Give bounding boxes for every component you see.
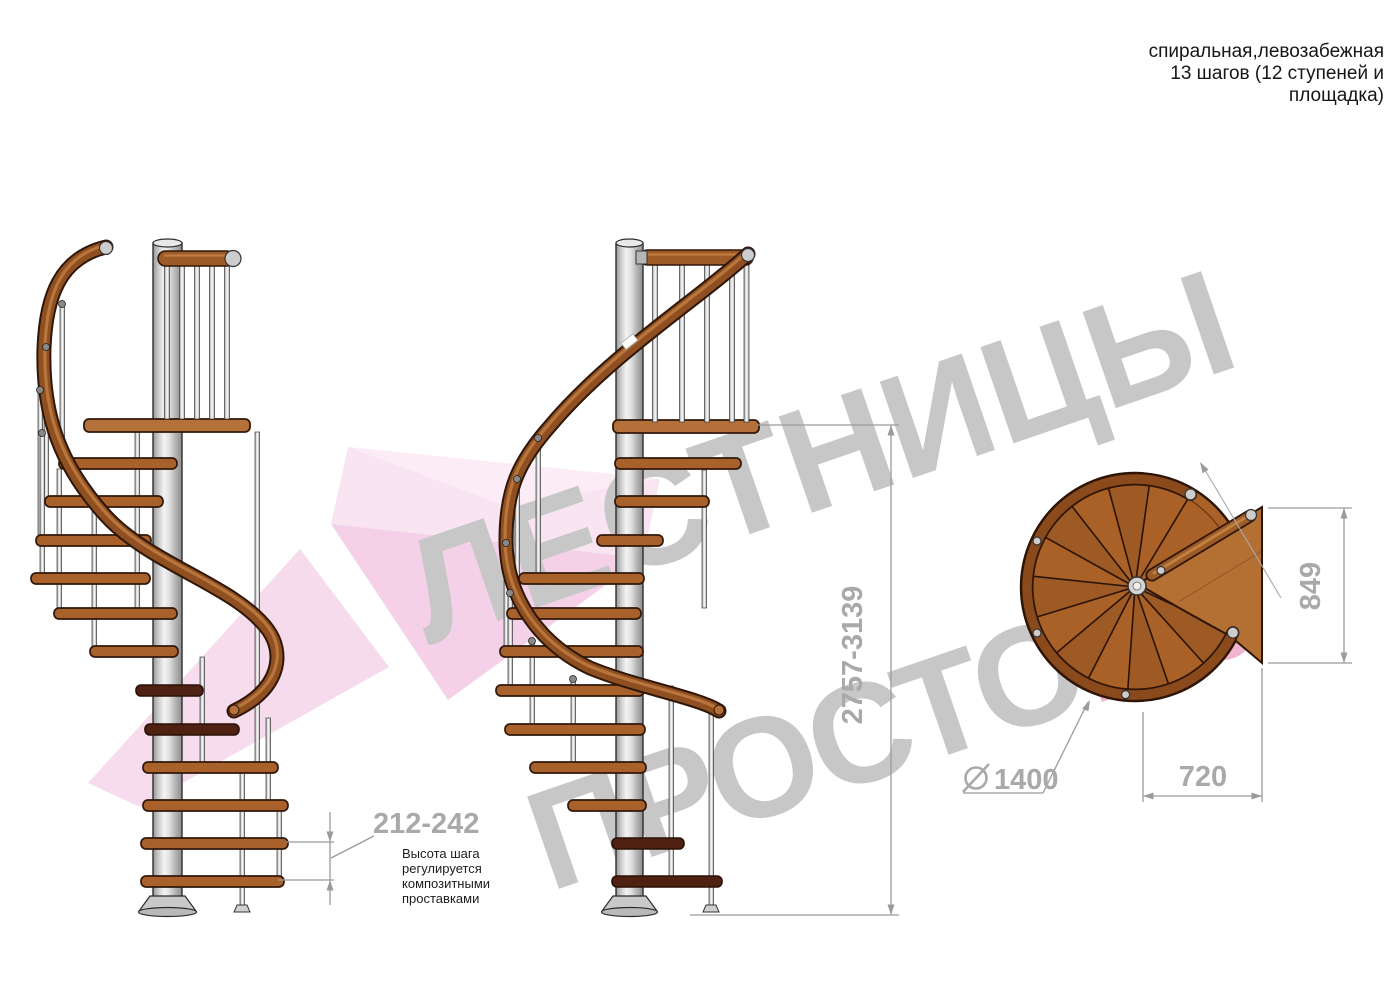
pole-base-plate (602, 908, 658, 917)
platform-board (613, 420, 759, 433)
header-line-2: 13 шагов (12 ступеней и (1170, 63, 1384, 84)
handrail-end (714, 705, 724, 715)
step-height-note-2: регулируется (402, 861, 482, 876)
rim-end-cap (1185, 489, 1196, 500)
header-line-1: спиральная,левозабежная (1149, 41, 1384, 62)
tread (90, 646, 178, 657)
watermark-word-2-gray: ПРОСТО (508, 584, 1103, 921)
tread (141, 838, 288, 849)
platform-depth-value: 849 (1295, 562, 1327, 610)
step-height-note-3: композитными (402, 876, 490, 891)
elevation-view-left (31, 239, 288, 917)
handrail-top-cap (742, 249, 755, 262)
tread (530, 762, 646, 773)
handrail-end (229, 705, 239, 715)
tread (141, 876, 284, 887)
pole-top-cap (616, 239, 643, 247)
baluster-foot (703, 905, 719, 912)
header-line-3: площадка) (1289, 85, 1384, 106)
tread-far-side (136, 685, 203, 696)
tread (615, 458, 741, 469)
tread (505, 724, 645, 735)
drawing-canvas: ЛЕСТНИЦЫ ПРОСТО.РУ (0, 0, 1400, 1000)
tread (597, 535, 663, 546)
handrail-top-cap (100, 242, 113, 255)
tread (568, 800, 646, 811)
rim-end-cap (1227, 627, 1238, 638)
tread-far-side (612, 876, 722, 887)
center-pole-core (1133, 582, 1141, 590)
step-height-note-1: Высота шага (402, 846, 480, 861)
tread-far-side (145, 724, 239, 735)
pole-top-cap (153, 239, 182, 247)
diameter-value: 1400 (994, 764, 1059, 796)
tread-far-side (612, 838, 684, 849)
rim-baluster-dot (1122, 691, 1130, 699)
platform-handrail-cap (1246, 510, 1257, 521)
platform-handrail-fitting (1157, 567, 1165, 575)
tread (143, 800, 288, 811)
pole-base-plate (139, 908, 197, 917)
dimension-step-height: 212-242 Высота шага регулируется компози… (278, 808, 490, 906)
rim-baluster-dot (1033, 629, 1041, 637)
page-header: спиральная,левозабежная 13 шагов (12 сту… (1149, 41, 1384, 106)
staircase-drawing: ЛЕСТНИЦЫ ПРОСТО.РУ (0, 0, 1400, 1000)
platform-width-value: 720 (1179, 761, 1227, 793)
rim-baluster-dot (1033, 537, 1041, 545)
platform-board (84, 419, 250, 432)
step-height-value: 212-242 (373, 808, 479, 840)
tread (31, 573, 150, 584)
baluster-foot (234, 905, 250, 912)
platform-handrail-bar (158, 251, 234, 266)
step-height-note-4: проставками (402, 891, 479, 906)
tread (143, 762, 278, 773)
tread (519, 573, 644, 584)
tread (54, 608, 177, 619)
total-height-value: 2757-3139 (837, 586, 869, 725)
rail-pole-bracket (636, 251, 647, 264)
tread (615, 496, 709, 507)
handrail-end-cap (225, 251, 241, 267)
